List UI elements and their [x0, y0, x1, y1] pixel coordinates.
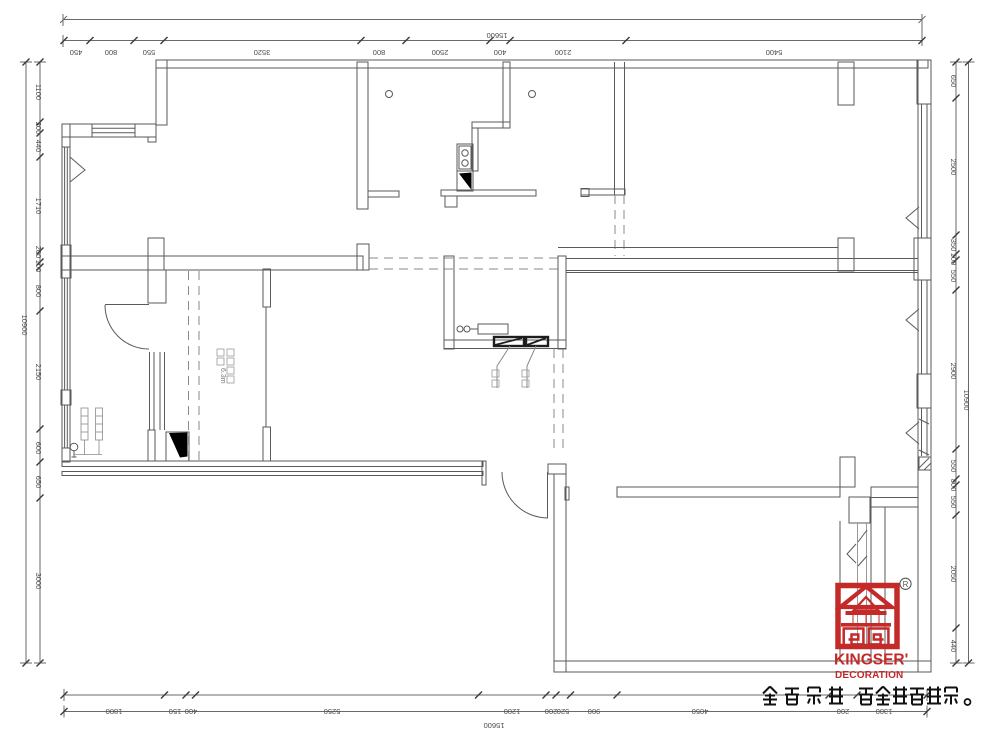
svg-text:DECORATION: DECORATION [835, 670, 903, 681]
svg-text:200: 200 [837, 707, 850, 716]
svg-text:1100: 1100 [34, 84, 43, 100]
svg-text:1200: 1200 [504, 707, 521, 716]
svg-text:R: R [903, 580, 909, 589]
svg-text:10900: 10900 [962, 390, 971, 411]
svg-text:550: 550 [949, 496, 958, 509]
svg-text:550: 550 [949, 270, 958, 283]
svg-text:1300: 1300 [876, 707, 893, 716]
svg-text:650: 650 [34, 476, 43, 489]
svg-text:15600: 15600 [487, 31, 508, 40]
svg-text:520: 520 [557, 707, 570, 716]
svg-text:900: 900 [588, 707, 601, 716]
svg-text:3520: 3520 [254, 48, 271, 57]
svg-text:800: 800 [373, 48, 386, 57]
svg-text:5400: 5400 [766, 48, 783, 57]
svg-text:2150: 2150 [34, 364, 43, 381]
svg-text:6.3m: 6.3m [219, 368, 226, 384]
svg-text:800: 800 [949, 479, 958, 492]
svg-text:200: 200 [34, 122, 43, 135]
svg-text:2500: 2500 [432, 48, 449, 57]
svg-text:2500: 2500 [949, 159, 958, 176]
svg-text:2100: 2100 [555, 48, 572, 57]
svg-text:3000: 3000 [34, 573, 43, 590]
svg-text:800: 800 [34, 285, 43, 298]
svg-text:15600: 15600 [484, 721, 505, 730]
svg-text:10900: 10900 [20, 315, 29, 336]
svg-text:600: 600 [34, 442, 43, 455]
svg-text:350: 350 [949, 239, 958, 252]
svg-text:1710: 1710 [34, 198, 43, 215]
svg-text:450: 450 [70, 48, 83, 57]
svg-text:5250: 5250 [324, 707, 341, 716]
svg-text:400: 400 [494, 48, 507, 57]
svg-text:1800: 1800 [106, 707, 123, 716]
svg-text:200: 200 [545, 707, 558, 716]
svg-text:KINGSER': KINGSER' [834, 652, 908, 669]
svg-text:440: 440 [949, 640, 958, 653]
svg-text:550: 550 [949, 460, 958, 473]
svg-text:2050: 2050 [949, 566, 958, 583]
svg-text:550: 550 [143, 48, 156, 57]
svg-text:150: 150 [169, 707, 182, 716]
svg-text:100: 100 [949, 253, 958, 266]
svg-text:4050: 4050 [692, 707, 709, 716]
svg-text:440: 440 [34, 140, 43, 153]
svg-text:200: 200 [34, 246, 43, 259]
svg-text:2900: 2900 [949, 363, 958, 380]
svg-text:800: 800 [105, 48, 118, 57]
svg-text:650: 650 [949, 75, 958, 88]
svg-text:100: 100 [34, 260, 43, 273]
svg-text:400: 400 [185, 707, 198, 716]
